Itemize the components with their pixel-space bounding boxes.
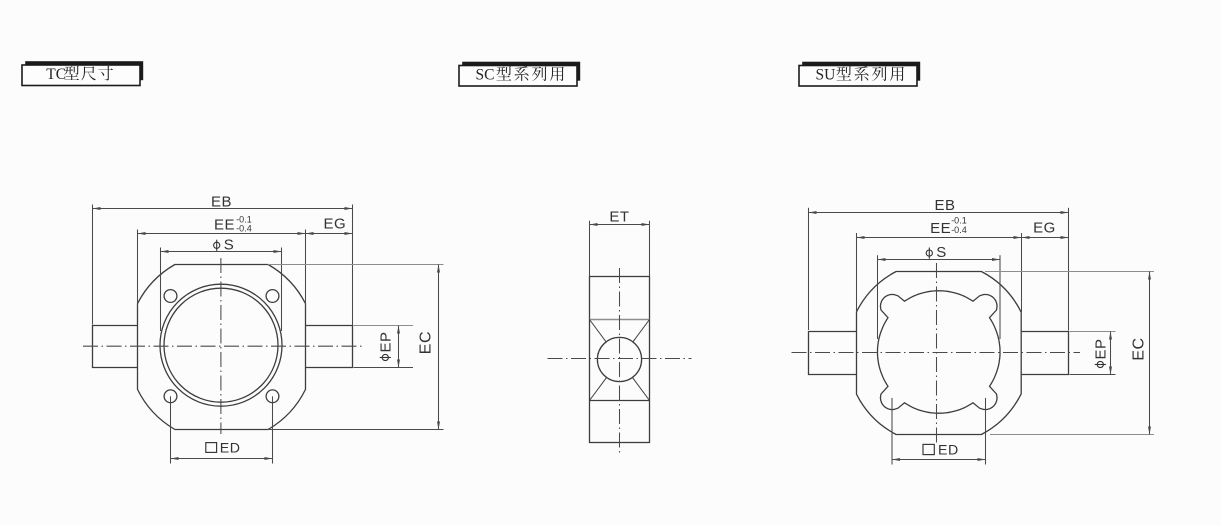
svg-text:S: S [224, 236, 235, 253]
svg-text:EP: EP [1092, 338, 1109, 359]
svg-text:TC: TC [46, 66, 66, 83]
svg-text:EE: EE [214, 217, 235, 234]
svg-text:EC: EC [1131, 337, 1148, 360]
svg-text:S: S [936, 244, 947, 261]
svg-text:SC: SC [476, 67, 495, 84]
svg-text:EG: EG [1033, 219, 1056, 236]
svg-text:EE: EE [930, 220, 951, 237]
svg-text:EP: EP [377, 331, 394, 352]
svg-text:-0.4: -0.4 [236, 224, 252, 234]
svg-text:SU: SU [816, 67, 836, 84]
svg-text:EC: EC [418, 331, 435, 354]
svg-text:ED: ED [220, 440, 241, 456]
svg-text:ET: ET [609, 208, 629, 225]
svg-text:-0.4: -0.4 [951, 225, 967, 235]
svg-text:EG: EG [323, 216, 346, 233]
svg-text:EB: EB [211, 194, 232, 211]
svg-text:ED: ED [938, 442, 959, 458]
svg-text:EB: EB [934, 197, 955, 214]
